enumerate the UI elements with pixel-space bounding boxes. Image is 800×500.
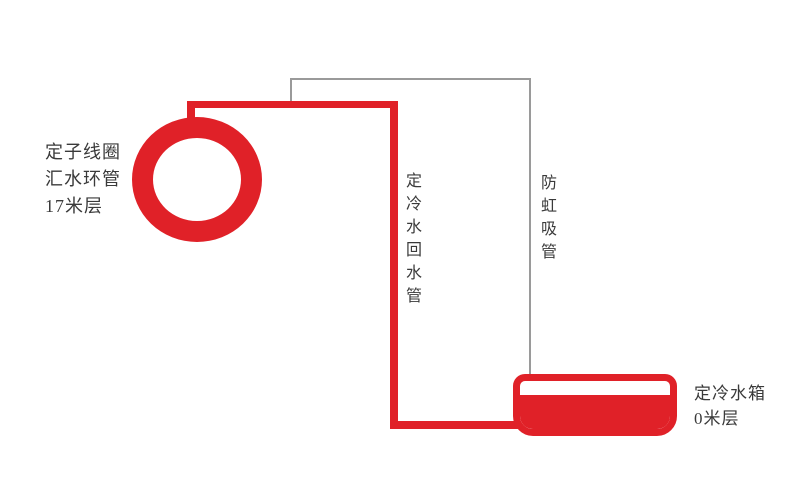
anti-siphon-pipe-down-segment — [529, 78, 531, 375]
ring-label-line2: 汇水环管 — [45, 166, 121, 193]
anti-siphon-pipe-left-segment — [290, 79, 292, 103]
return-pipe-label: 定冷水回水管 — [399, 172, 423, 310]
cooling-system-diagram: 定子线圈 汇水环管 17米层 定冷水回水管 防虹吸管 定冷水箱 0米层 — [0, 0, 800, 500]
return-pipe-bottom-segment — [390, 421, 518, 429]
ring-label-line3: 17米层 — [45, 193, 121, 220]
tank-label-line2: 0米层 — [694, 406, 766, 431]
return-pipe-vertical-segment — [390, 101, 398, 429]
anti-siphon-pipe-top-segment — [290, 78, 531, 80]
return-pipe-top-segment — [187, 101, 398, 108]
ring-label-line1: 定子线圈 — [45, 139, 121, 166]
stator-ring-pipe — [132, 117, 262, 242]
tank-label: 定冷水箱 0米层 — [694, 381, 766, 431]
anti-siphon-pipe-label: 防虹吸管 — [534, 174, 558, 266]
ring-label: 定子线圈 汇水环管 17米层 — [45, 139, 121, 220]
tank-water-fill — [520, 395, 670, 429]
cooling-water-tank — [513, 374, 677, 436]
tank-label-line1: 定冷水箱 — [694, 381, 766, 406]
